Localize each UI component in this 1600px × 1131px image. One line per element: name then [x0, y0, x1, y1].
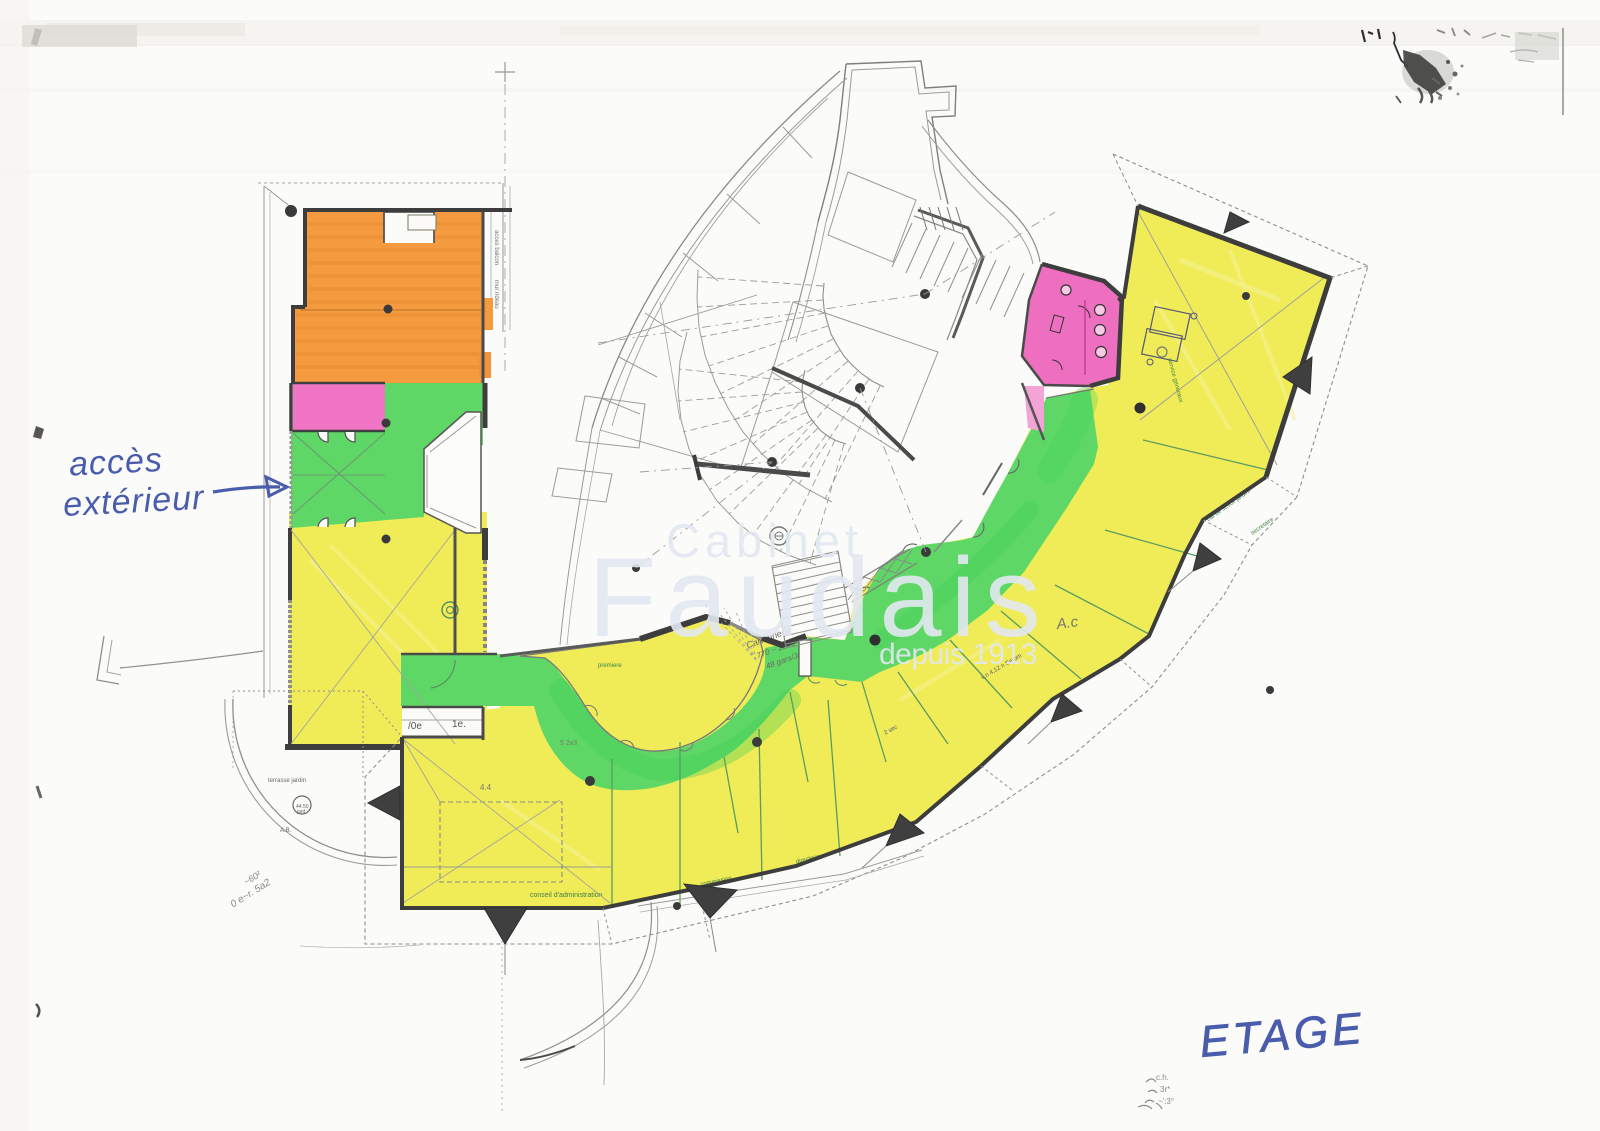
svg-text:~':3°: ~':3°: [1158, 1097, 1174, 1106]
svg-text:4.4: 4.4: [480, 783, 492, 792]
svg-text:A.c: A.c: [1054, 613, 1079, 633]
svg-text:5 2x3: 5 2x3: [560, 740, 577, 747]
svg-text:3r*: 3r*: [1160, 1085, 1170, 1094]
svg-text:depuis 1913: depuis 1913: [879, 638, 1037, 671]
svg-text:extérieur: extérieur: [62, 479, 206, 524]
svg-text:/0e: /0e: [408, 721, 422, 732]
svg-text:accès: accès: [68, 441, 164, 484]
svg-text:terrasse jardin: terrasse jardin: [268, 778, 306, 784]
svg-text:jard: jard: [296, 809, 306, 815]
svg-text:1e.: 1e.: [452, 719, 466, 730]
svg-text:c.h.: c.h.: [1156, 1073, 1169, 1082]
svg-text:A.B.: A.B.: [280, 828, 292, 834]
svg-text:premiere: premiere: [598, 663, 622, 669]
svg-text:mur rideau: mur rideau: [493, 280, 499, 309]
svg-text:acces balcon: acces balcon: [493, 230, 499, 265]
svg-text:conseil d'administration: conseil d'administration: [530, 892, 603, 899]
